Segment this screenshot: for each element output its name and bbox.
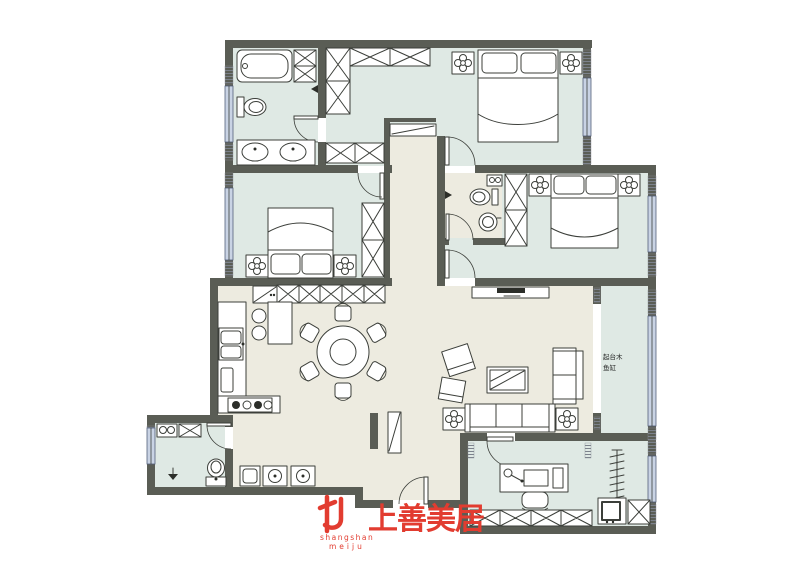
wardrobe: [326, 143, 384, 163]
radiator-hatch: [225, 144, 233, 160]
bed: [478, 50, 558, 142]
entry-floor: [363, 487, 460, 500]
radiator-hatch: [648, 428, 656, 440]
entry-cabinet: [388, 412, 401, 453]
radiator-hatch: [648, 254, 656, 276]
armchair: [438, 377, 465, 403]
nightstand: [334, 255, 356, 277]
corridor-floor: [388, 136, 437, 286]
balcony-annotation-line2: 鱼缸: [603, 363, 617, 372]
nightstand: [529, 174, 551, 196]
cabinet: [179, 424, 201, 437]
wardrobe: [350, 48, 430, 66]
bar-stool: [252, 309, 266, 323]
washing-machine: [157, 424, 177, 437]
bed: [268, 208, 333, 278]
bathtub: [237, 50, 292, 82]
nightstand: [452, 52, 474, 74]
wardrobe: [326, 48, 350, 114]
radiator-hatch: [583, 138, 591, 164]
dining-table-center: [330, 339, 356, 365]
shangshan-meiju-logo: [320, 497, 341, 531]
radiator-hatch: [225, 66, 233, 84]
nightstand: [618, 174, 640, 196]
radiator-hatch: [225, 173, 233, 186]
wardrobe: [505, 174, 527, 246]
bed: [551, 174, 618, 248]
closet: [390, 124, 436, 136]
dining-chair: [335, 383, 351, 401]
bookshelf: [470, 510, 592, 526]
logo-subtext-line2: meiju: [329, 542, 365, 551]
logo-text: 上善美居: [368, 502, 484, 537]
sink-cabinet: [487, 175, 502, 186]
side-table: [443, 408, 465, 430]
double-sink: [237, 140, 315, 165]
sofa-three-seat: [465, 404, 555, 432]
radiator-hatch: [648, 290, 656, 314]
cutting-board: [221, 368, 233, 392]
radiator-hatch: [225, 262, 233, 276]
radiator-hatch: [594, 288, 600, 302]
logo-subtext-line1: shangshan: [320, 533, 374, 542]
toilet: [206, 459, 226, 486]
balcony-annotation-line1: 起台木: [603, 352, 623, 361]
washer: [263, 466, 287, 486]
entry-hall: [388, 412, 401, 453]
kitchen-sink: [219, 328, 245, 360]
side-table: [556, 408, 578, 430]
toilet: [470, 189, 498, 205]
stove: [218, 396, 280, 413]
floor-plan: 起台木 鱼缸: [0, 0, 800, 565]
wardrobe: [277, 285, 385, 303]
cabinet: [598, 498, 626, 524]
wardrobe: [628, 500, 650, 524]
bar-counter: [268, 302, 292, 344]
logo: 上善美居 shangshan meiju: [320, 497, 484, 551]
radiator-hatch: [585, 443, 591, 458]
laundry-area: [240, 466, 315, 486]
sofa-loveseat: [553, 348, 583, 404]
desk: [500, 464, 568, 492]
radiator-hatch: [468, 443, 474, 458]
nightstand: [246, 255, 268, 277]
radiator-hatch: [583, 50, 591, 76]
nightstand: [560, 52, 582, 74]
wardrobe: [362, 203, 384, 277]
bar-stool: [252, 326, 266, 340]
tv-unit: [472, 287, 549, 298]
toilet: [237, 97, 266, 117]
dining-chair: [335, 304, 351, 322]
radiator-hatch: [648, 176, 656, 194]
coffee-table: [487, 367, 528, 393]
radiator-hatch: [648, 442, 656, 454]
washer: [291, 466, 315, 486]
fridge: [253, 286, 277, 303]
floor-plan-page: 起台木 鱼缸: [0, 0, 800, 565]
cabinet: [240, 466, 260, 486]
radiator-hatch: [594, 417, 600, 429]
wardrobe: [294, 50, 316, 82]
